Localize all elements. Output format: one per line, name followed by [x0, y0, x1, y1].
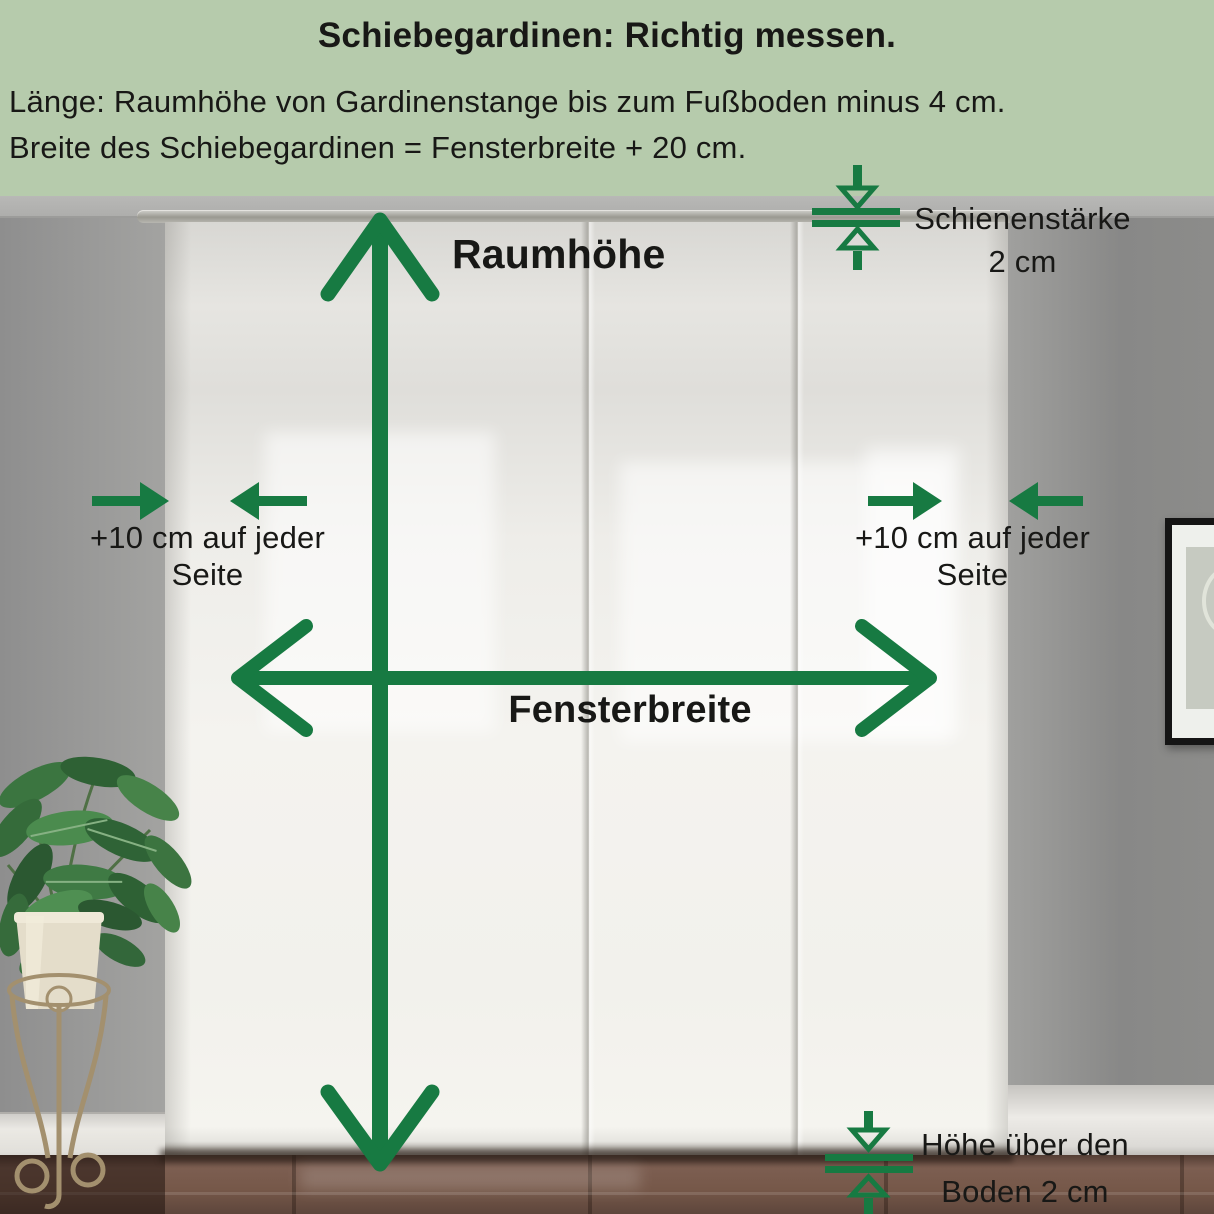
picture-frame	[1165, 518, 1214, 745]
measuring-infographic: Schiebegardinen: Richtig messen. Länge: …	[0, 0, 1214, 1214]
left-overlap-label: +10 cm auf jeder Seite	[50, 519, 365, 593]
frame-mat	[1172, 525, 1214, 738]
floor-reflection	[300, 1166, 640, 1190]
header-band: Schiebegardinen: Richtig messen. Länge: …	[0, 0, 1214, 196]
width-instruction: Breite des Schiebegardinen = Fensterbrei…	[9, 130, 746, 166]
artwork-circle-motif	[1202, 565, 1214, 637]
rail-thickness-label: Schienenstärke 2 cm	[895, 197, 1150, 283]
plant-stand	[9, 975, 109, 1207]
room-height-label: Raumhöhe	[452, 231, 665, 278]
floor-gap-label: Höhe über den Boden 2 cm	[880, 1121, 1170, 1214]
frame-artwork	[1186, 547, 1214, 709]
page-title: Schiebegardinen: Richtig messen.	[0, 16, 1214, 56]
length-instruction: Länge: Raumhöhe von Gardinenstange bis z…	[9, 84, 1006, 120]
window-width-label: Fensterbreite	[430, 689, 830, 732]
right-overlap-label: +10 cm auf jeder Seite	[815, 519, 1130, 593]
potted-plant	[0, 735, 205, 1214]
